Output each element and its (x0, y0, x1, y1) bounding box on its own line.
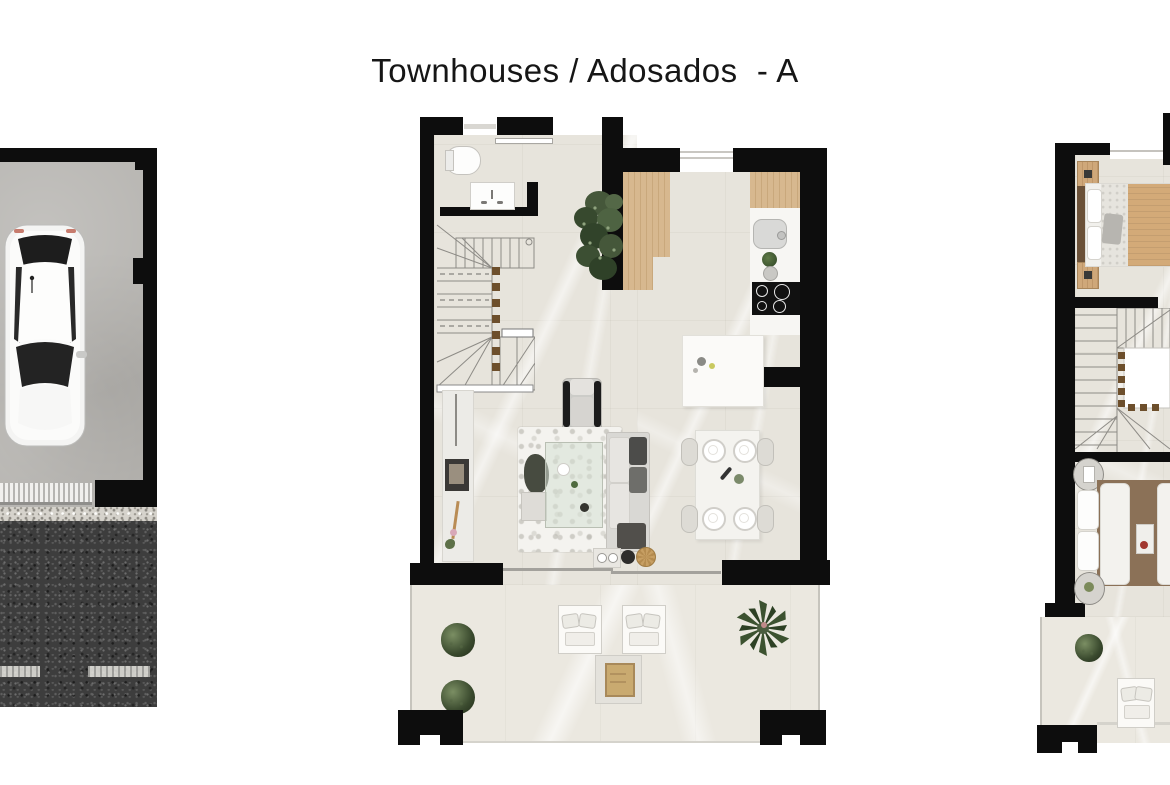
flower-pink (450, 529, 457, 536)
garage-wall-top (0, 148, 157, 162)
balcony-lounger (1117, 678, 1155, 728)
upper-wall-divider-1 (1057, 297, 1158, 308)
garage-door (0, 483, 92, 505)
sliding-door-panel-b (611, 571, 721, 574)
wall-right-stub (763, 367, 826, 387)
wall-top-b (497, 117, 553, 135)
sun-lounger (558, 605, 602, 654)
wall-kitchen-top-a (623, 148, 680, 172)
place-setting (702, 439, 726, 463)
wall-bath-right (527, 182, 538, 216)
terrace-edge-left (410, 585, 412, 711)
sofa (606, 432, 650, 552)
garage-door-jamb (133, 258, 143, 284)
road-dash-right (88, 666, 150, 677)
kitchen-sink-icon (753, 219, 787, 249)
terrace-edge-right (818, 585, 820, 711)
floor-lamp-icon (455, 394, 457, 446)
side-table (521, 492, 547, 521)
sun-lounger (622, 605, 666, 654)
wall-top-a (420, 117, 463, 135)
upper-wall-corner-stub (1045, 603, 1085, 617)
staircase-ground (434, 215, 535, 395)
bed-2-duvet-left (1100, 483, 1130, 585)
garage-wall-notch (135, 162, 143, 170)
kitchen-island (682, 335, 764, 407)
terrace-shrub (441, 623, 475, 657)
armchair (562, 378, 602, 432)
car-top-view-icon (2, 223, 88, 448)
wall-art (445, 459, 469, 491)
bed-2-pillow (1077, 531, 1099, 571)
indoor-plant-icon (570, 188, 628, 286)
coffee-table (545, 442, 603, 528)
upper-wall-top (1055, 143, 1110, 155)
driveway-asphalt (0, 521, 157, 707)
tray-flower-icon (1140, 541, 1148, 549)
upper-wall-left (1055, 143, 1075, 610)
kitchen-window (680, 146, 733, 164)
breakfast-tray (1136, 524, 1154, 554)
bed-1-headboard (1077, 186, 1085, 262)
sideboard (442, 390, 474, 562)
balcony-shrub (1075, 634, 1103, 662)
vanity-sink-icon (470, 182, 515, 210)
kitchen-wood-floor-b (623, 257, 653, 290)
sliding-door-panel-a (503, 568, 613, 571)
cooktop-icon (752, 282, 800, 315)
terrace-shrub (441, 680, 475, 714)
dining-chair (757, 438, 774, 466)
black-pot-icon (621, 550, 635, 564)
kitchen-plant-icon (762, 252, 777, 267)
place-setting (733, 439, 757, 463)
kitchen-wood-floor-a (623, 172, 670, 257)
terrace-table (595, 655, 642, 704)
upper-wall-divider-2 (1057, 452, 1170, 462)
place-setting (733, 507, 757, 531)
toilet-tank (445, 150, 454, 171)
road-dash-left (0, 666, 40, 677)
bed-2-duvet-right (1157, 483, 1170, 585)
wall-left (420, 117, 434, 583)
garage-wall-right (143, 148, 157, 508)
pillar-notch (1062, 742, 1078, 753)
upper-window (1110, 144, 1163, 159)
upper-wall-edge-sliver (1163, 113, 1170, 165)
kitchen-cabinet (750, 172, 800, 208)
kitchen-plant-pot (763, 266, 778, 281)
pillar-notch (420, 735, 440, 745)
front-door-leaf (495, 138, 553, 144)
terrace-plant-icon (733, 598, 793, 658)
flower-leaf (445, 539, 455, 549)
dining-chair (757, 505, 774, 533)
round-side-table (1074, 572, 1105, 605)
page-title: Townhouses / Adosados - A (0, 52, 1170, 90)
bath-window-bar (464, 124, 496, 129)
balcony-edge-left (1040, 617, 1042, 725)
pillar-notch (782, 735, 800, 745)
dining-chair (681, 438, 698, 466)
terrace-edge-bottom (463, 741, 760, 743)
garage-wall-bottom-right (95, 480, 157, 508)
wall-bottom-left (410, 563, 503, 585)
wall-bottom-right (722, 560, 830, 585)
bed-1 (1085, 183, 1170, 267)
table-plant-icon (734, 474, 744, 484)
gravel-strip (0, 507, 157, 521)
decor-tray (593, 548, 621, 568)
bed-2-pillow (1077, 490, 1099, 530)
woven-basket-icon (636, 547, 656, 567)
place-setting (702, 507, 726, 531)
dining-chair (681, 505, 698, 533)
staircase-upper (1075, 308, 1170, 452)
floor-plan-sheet: Townhouses / Adosados - A (0, 0, 1170, 785)
